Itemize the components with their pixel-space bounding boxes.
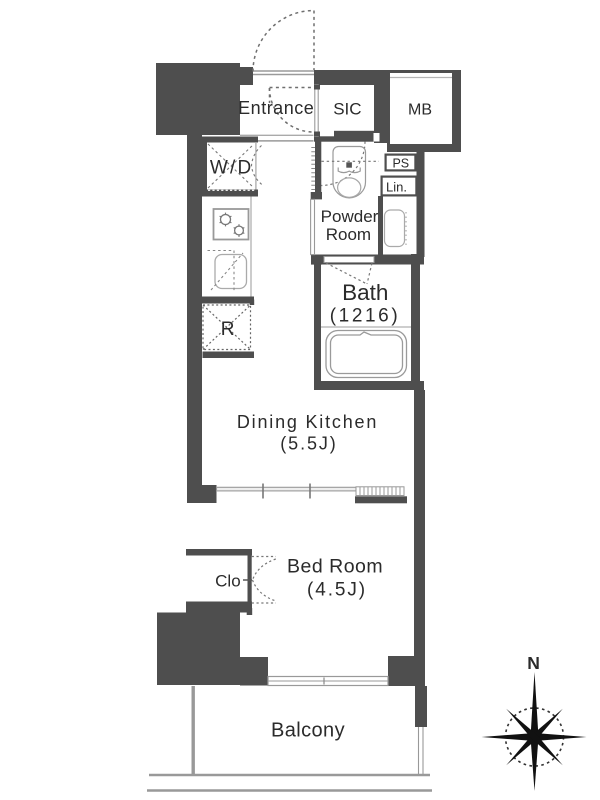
svg-text:Lin.: Lin. [386,180,407,195]
svg-text:Clo: Clo [215,572,241,591]
svg-text:N: N [527,653,540,673]
svg-text:SIC: SIC [333,100,361,119]
svg-text:Room: Room [326,225,371,244]
svg-text:Entrance: Entrance [238,98,314,118]
svg-text:MB: MB [408,102,432,119]
svg-text:(5.5J): (5.5J) [280,434,337,454]
svg-text:Balcony: Balcony [271,720,345,742]
svg-text:Bath: Bath [342,280,388,305]
svg-text:Dining Kitchen: Dining Kitchen [237,412,378,432]
svg-text:Powder: Powder [321,207,379,226]
svg-text:PS: PS [392,157,409,171]
svg-text:W/D: W/D [210,158,254,179]
svg-text:(1216): (1216) [330,306,401,327]
svg-text:(4.5J): (4.5J) [307,580,367,601]
svg-text:Bed Room: Bed Room [287,556,383,578]
svg-text:R: R [221,319,235,340]
